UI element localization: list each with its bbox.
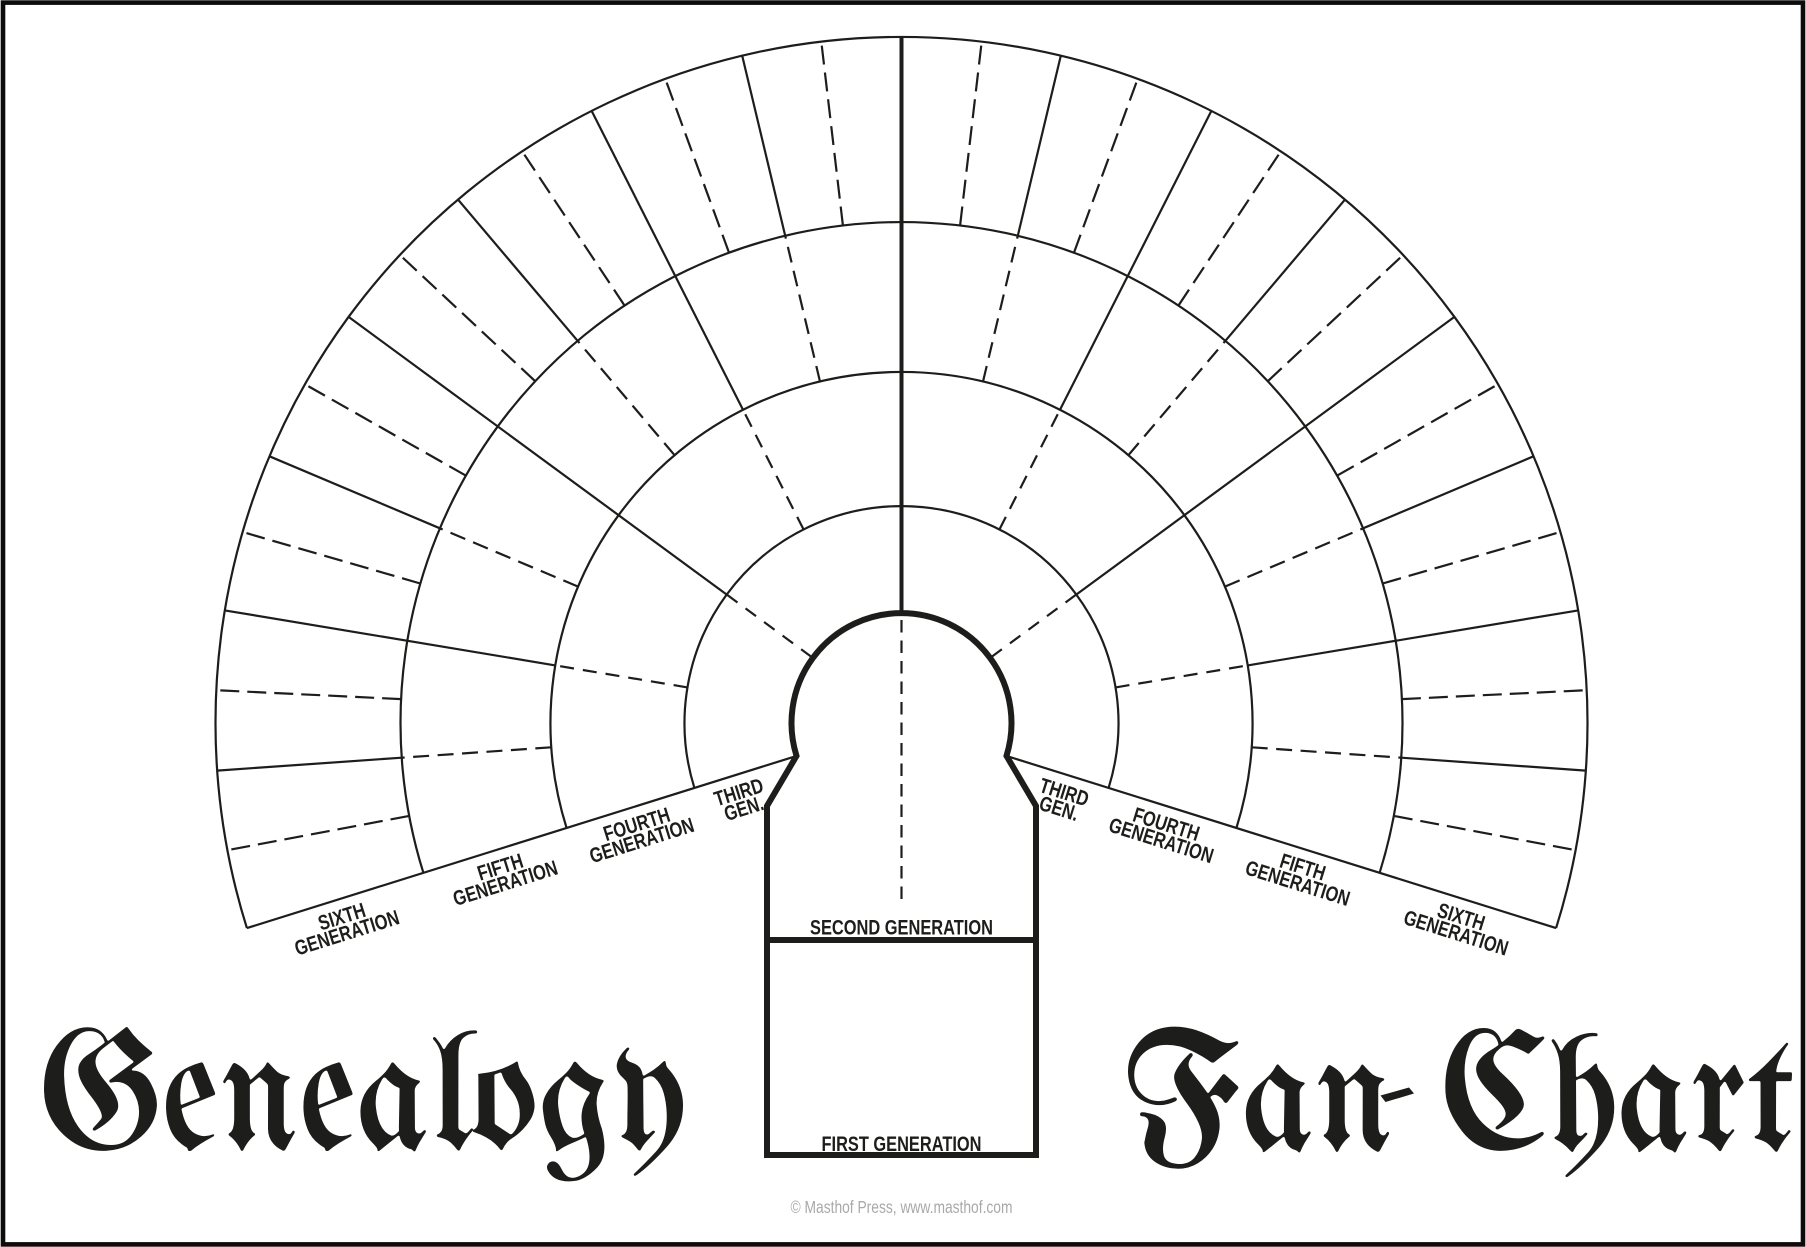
svg-text:SECOND GENERATION: SECOND GENERATION (810, 917, 993, 940)
svg-text:© Masthof Press, www.masthof.c: © Masthof Press, www.masthof.com (791, 1197, 1013, 1217)
svg-text:FIRST GENERATION: FIRST GENERATION (822, 1133, 982, 1156)
